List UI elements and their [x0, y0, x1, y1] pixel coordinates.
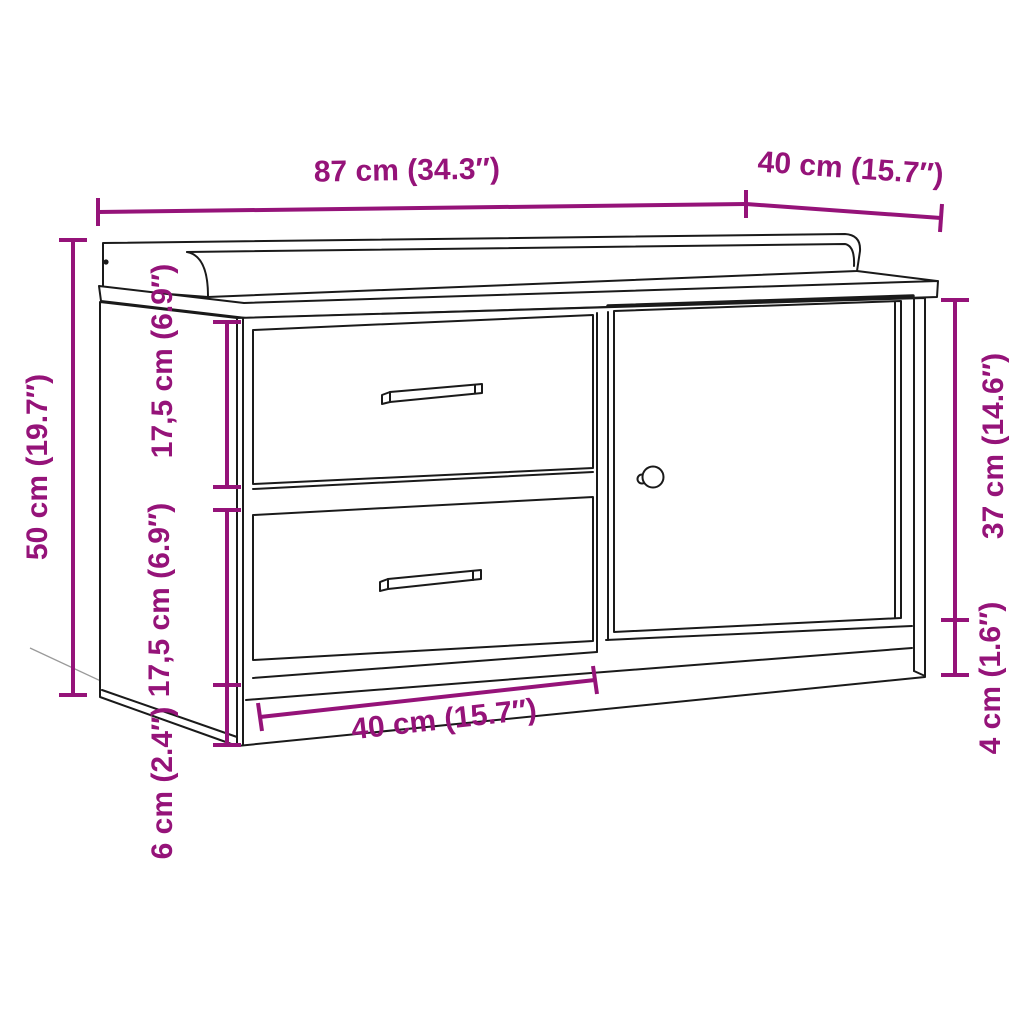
dim-total-height: 50 cm (19.7″) [21, 240, 87, 695]
dim-label-total-width: 87 cm (34.3″) [313, 152, 500, 188]
dimension-diagram: 87 cm (34.3″) 40 cm (15.7″) 50 cm (19.7″… [0, 0, 1024, 1024]
dim-line [746, 204, 941, 218]
dim-line [98, 204, 746, 212]
drawer-2-handle-cap [380, 579, 388, 591]
dim-label-door-height: 37 cm (14.6″) [977, 353, 1010, 539]
dim-label-drawer-top-height: 17,5 cm (6.9″) [146, 264, 179, 458]
dim-label-total-height: 50 cm (19.7″) [21, 374, 54, 560]
drawer-1-handle-cap [382, 392, 390, 404]
dim-tick [940, 204, 942, 232]
diagram-svg: 87 cm (34.3″) 40 cm (15.7″) 50 cm (19.7″… [0, 0, 1024, 1024]
dim-label-plinth-right: 4 cm (1.6″) [974, 602, 1007, 755]
dim-plinth-right: 4 cm (1.6″) [941, 602, 1007, 755]
top-panel-back-edge-right [857, 271, 937, 281]
screw-dot [103, 259, 108, 264]
dim-total-width: 87 cm (34.3″) [98, 152, 746, 226]
dim-label-drawer-bottom-height: 17,5 cm (6.9″) [143, 503, 176, 697]
door-knob [643, 467, 664, 488]
dim-label-plinth-left: 6 cm (2.4″) [146, 707, 179, 860]
dim-label-total-depth: 40 cm (15.7″) [757, 146, 945, 192]
dim-total-depth: 40 cm (15.7″) [746, 146, 945, 232]
